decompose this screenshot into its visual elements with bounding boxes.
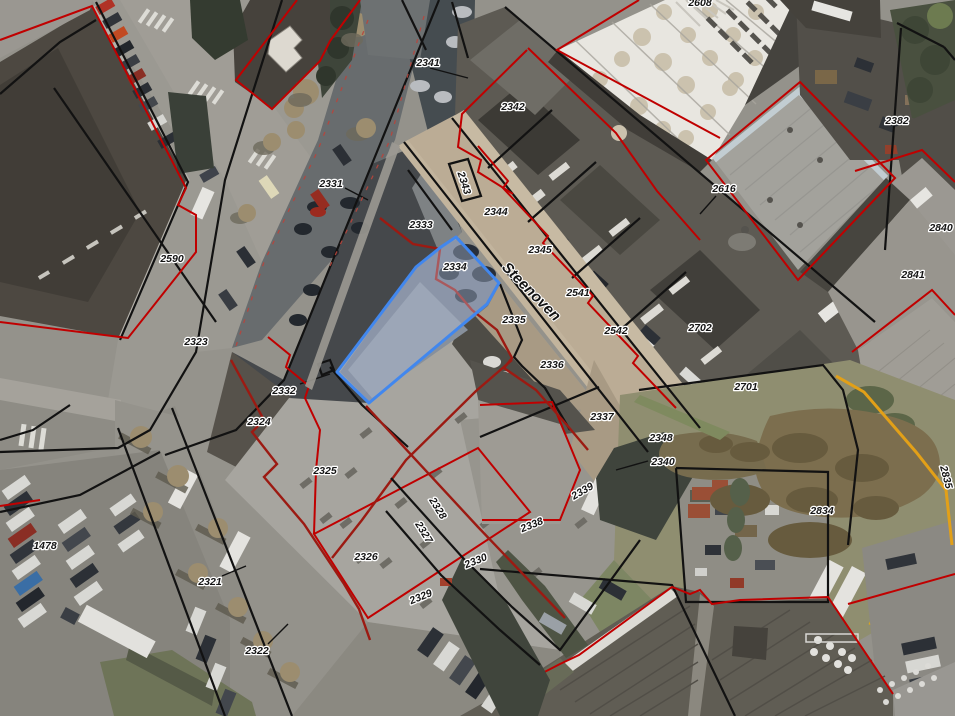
- svg-text:2337: 2337: [589, 411, 615, 423]
- svg-text:2335: 2335: [501, 314, 526, 326]
- svg-text:2333: 2333: [408, 219, 433, 231]
- svg-text:2344: 2344: [483, 206, 508, 218]
- svg-text:2342: 2342: [500, 101, 525, 113]
- svg-text:2341: 2341: [415, 57, 440, 69]
- svg-text:2541: 2541: [565, 287, 590, 299]
- svg-text:2348: 2348: [648, 432, 673, 444]
- svg-text:2608: 2608: [687, 0, 712, 9]
- svg-text:2325: 2325: [312, 465, 337, 477]
- svg-text:1478: 1478: [33, 540, 57, 552]
- svg-text:2332: 2332: [271, 385, 296, 397]
- svg-text:2321: 2321: [197, 576, 222, 588]
- svg-text:2701: 2701: [733, 381, 758, 393]
- svg-text:2345: 2345: [527, 244, 552, 256]
- svg-text:2326: 2326: [353, 551, 378, 563]
- svg-text:2702: 2702: [687, 322, 712, 334]
- svg-text:2334: 2334: [442, 261, 467, 273]
- svg-text:2340: 2340: [650, 456, 675, 468]
- svg-text:2590: 2590: [159, 253, 184, 265]
- svg-text:2322: 2322: [244, 645, 269, 657]
- svg-text:2336: 2336: [539, 359, 564, 371]
- svg-text:2840: 2840: [928, 222, 953, 234]
- svg-text:2841: 2841: [900, 269, 925, 281]
- svg-text:2542: 2542: [603, 325, 628, 337]
- svg-text:2323: 2323: [183, 336, 208, 348]
- svg-text:2324: 2324: [246, 416, 271, 428]
- svg-text:2331: 2331: [318, 178, 343, 190]
- svg-text:2382: 2382: [884, 115, 909, 127]
- svg-text:2834: 2834: [809, 505, 834, 517]
- svg-text:2616: 2616: [711, 183, 736, 195]
